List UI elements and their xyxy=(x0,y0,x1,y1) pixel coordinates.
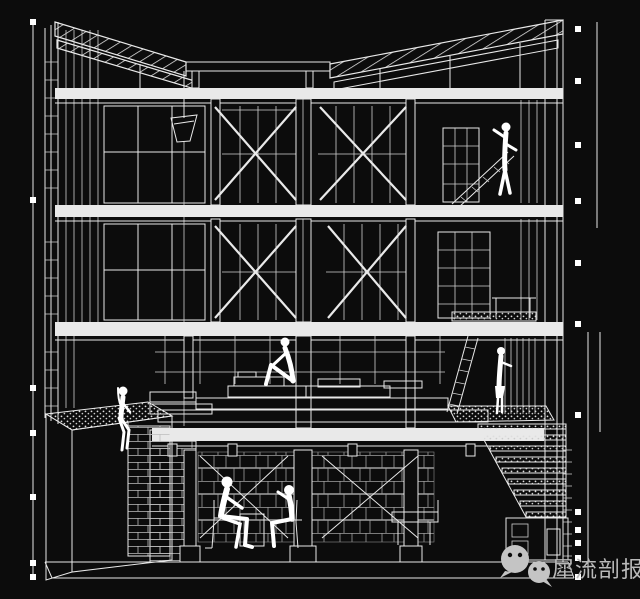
wechat-icon xyxy=(500,545,552,587)
person-standing-stairs xyxy=(495,347,511,413)
roof-truss xyxy=(55,20,563,90)
person-standing-shelves xyxy=(494,123,516,195)
dimension-line-right xyxy=(575,22,600,580)
watermark-text: 犀流剖报 xyxy=(552,558,640,583)
dimension-line-left xyxy=(30,19,36,580)
ladder xyxy=(447,336,478,414)
planter xyxy=(46,402,172,580)
sectional-perspective-drawing: 犀流剖报 xyxy=(0,0,640,599)
watermark: 犀流剖报 xyxy=(500,545,640,587)
screenshot-root: 犀流剖报 xyxy=(0,0,640,599)
ground-slab xyxy=(45,562,574,578)
